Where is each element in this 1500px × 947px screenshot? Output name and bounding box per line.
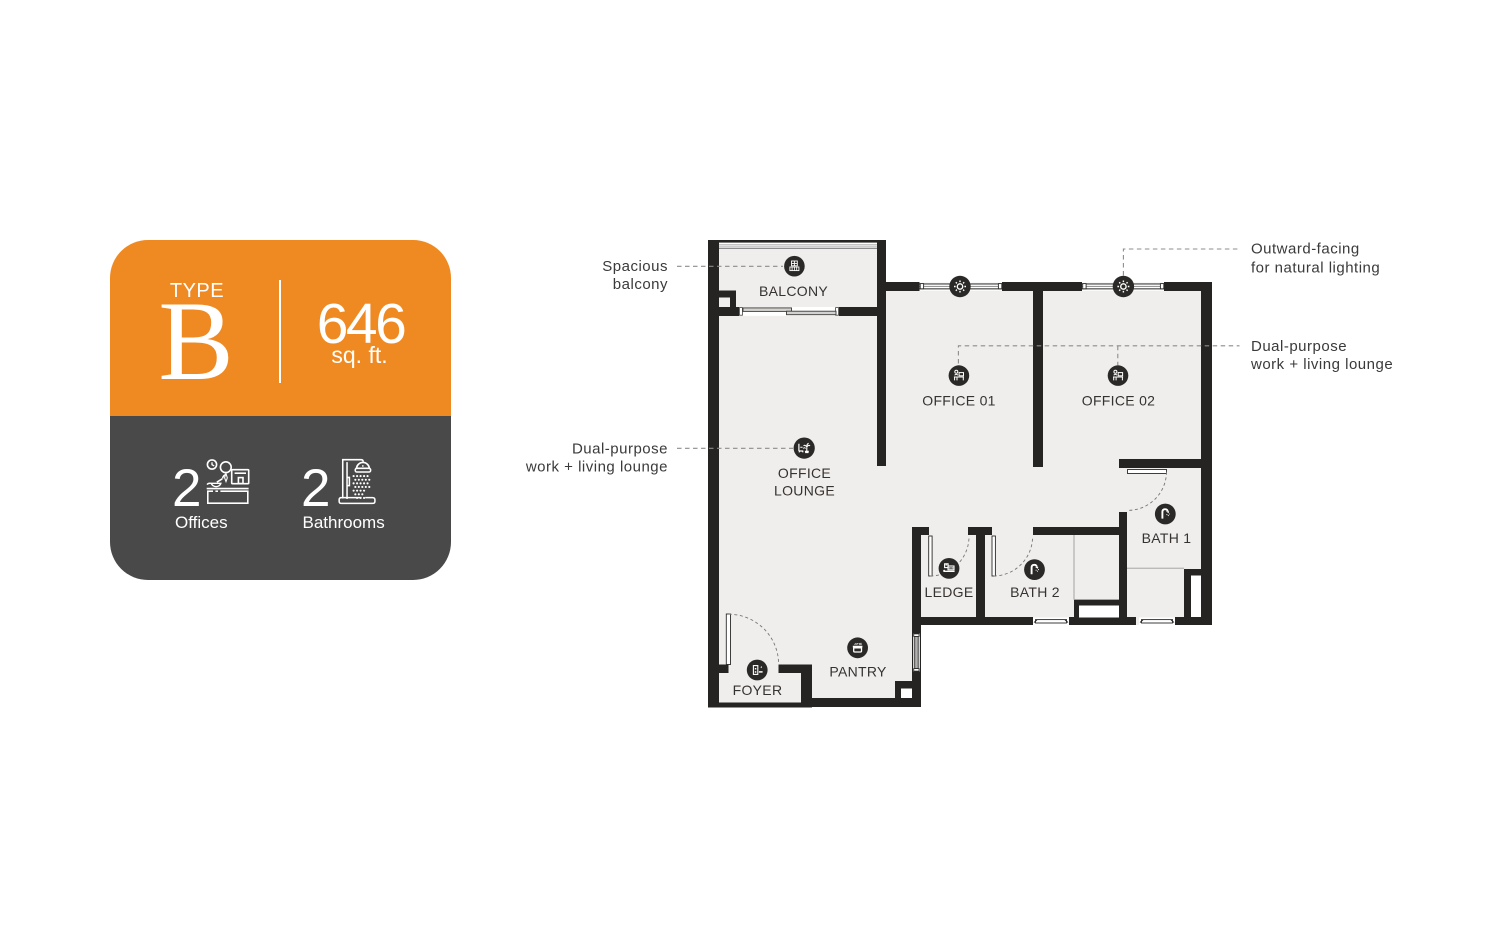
svg-text:OFFICE 01: OFFICE 01 [922, 393, 996, 409]
svg-text:PANTRY: PANTRY [829, 664, 887, 680]
svg-text:Dual-purpose: Dual-purpose [1251, 338, 1347, 355]
svg-text:Dual-purpose: Dual-purpose [572, 441, 668, 458]
svg-text:LOUNGE: LOUNGE [774, 483, 835, 499]
svg-text:balcony: balcony [613, 276, 668, 293]
svg-text:work + living lounge: work + living lounge [525, 459, 668, 476]
svg-text:for natural lighting: for natural lighting [1251, 260, 1380, 277]
svg-text:OFFICE 02: OFFICE 02 [1082, 393, 1156, 409]
svg-text:BATH 1: BATH 1 [1142, 530, 1192, 546]
svg-text:BALCONY: BALCONY [759, 283, 828, 299]
svg-text:OFFICE: OFFICE [778, 465, 831, 481]
svg-text:Spacious: Spacious [602, 258, 668, 275]
svg-text:work + living lounge: work + living lounge [1250, 356, 1393, 373]
svg-text:LEDGE: LEDGE [925, 584, 974, 600]
svg-text:BATH 2: BATH 2 [1010, 584, 1060, 600]
svg-text:Outward-facing: Outward-facing [1251, 241, 1360, 258]
svg-text:FOYER: FOYER [733, 682, 783, 698]
